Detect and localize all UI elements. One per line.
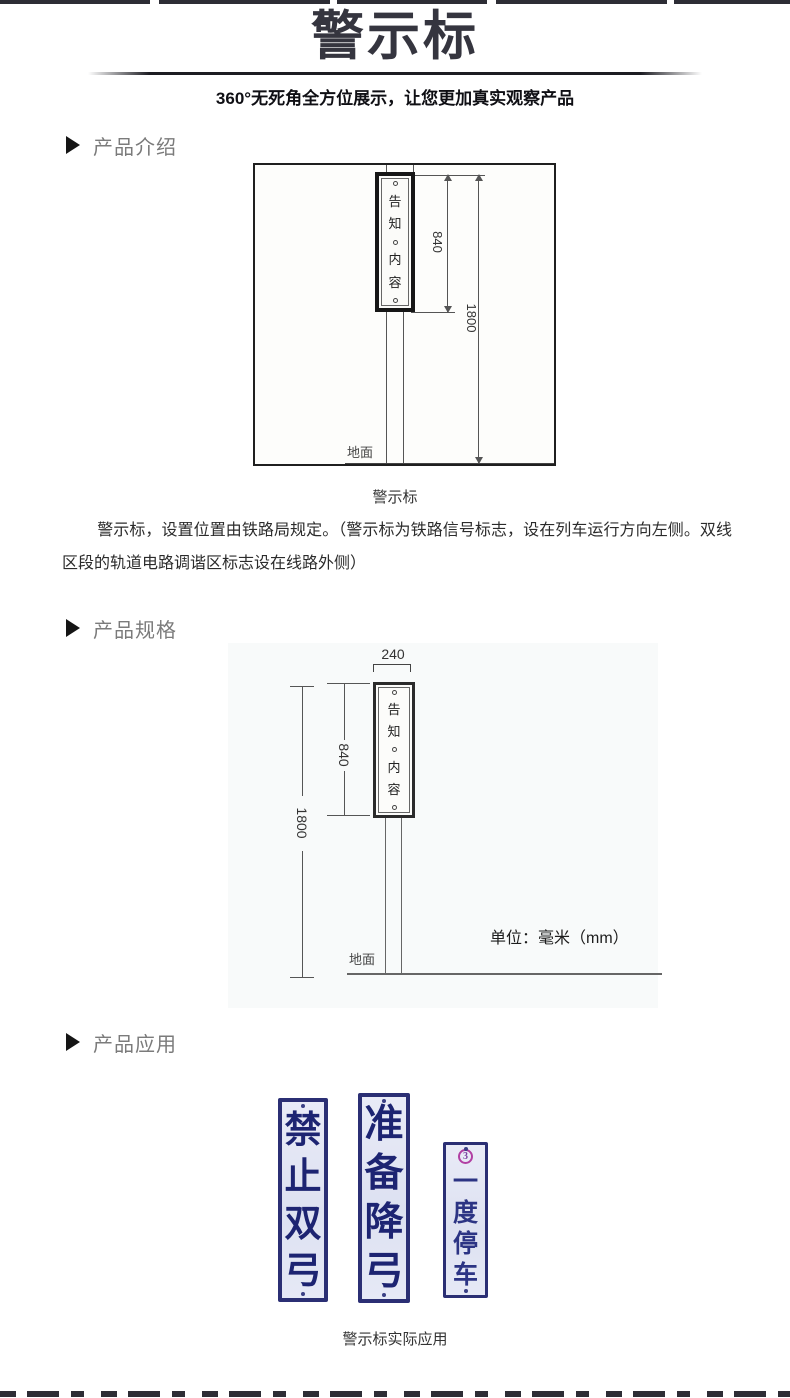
ground-line (347, 973, 662, 975)
spec-diagram: 240 告 知 内 容 840 1800 地面 单位：毫米（ (228, 643, 658, 1008)
app-sign-text: 准备降弓 (363, 1100, 404, 1296)
sign-plate-inner: 告 知 内 容 (381, 178, 409, 306)
sign-plate-inner: 告 知 内 容 (378, 687, 410, 813)
app-sign-jinzhi-shuanggong: 禁止双弓 (278, 1098, 328, 1302)
dimension-label-1800: 1800 (464, 295, 478, 341)
section-header-intro: 产品介绍 (66, 132, 177, 158)
bottom-border-strip (0, 1391, 790, 1397)
circled-number-icon: 3 (458, 1149, 473, 1164)
screw-hole-icon (393, 298, 398, 303)
dimension-bracket-240 (373, 664, 411, 672)
sign-char: 容 (388, 276, 401, 290)
section-label: 产品规格 (93, 614, 177, 643)
sign-plate-drawing: 告 知 内 容 (373, 682, 415, 818)
title-divider (88, 72, 702, 75)
screw-hole-icon (392, 805, 397, 810)
dimension-label-240: 240 (368, 646, 418, 662)
ground-label: 地面 (347, 442, 373, 461)
triangle-bullet-icon (66, 619, 80, 637)
sign-char: 知 (387, 725, 400, 739)
sign-char: 告 (387, 703, 400, 717)
section-header-spec: 产品规格 (66, 615, 177, 641)
dimension-label-1800: 1800 (295, 797, 309, 849)
intro-paragraph: 警示标，设置位置由铁路局规定。（警示标为铁路信号标志，设在列车运行方向左侧。双线… (62, 514, 732, 580)
sign-post (386, 312, 404, 463)
post-stub-line (386, 165, 387, 172)
sign-char: 内 (388, 253, 401, 267)
post-stub-line (413, 165, 414, 172)
dimension-line-840 (344, 683, 345, 740)
sign-post (385, 818, 402, 973)
page-title: 警示标 (0, 4, 790, 70)
dimension-line-840 (344, 771, 345, 815)
screw-hole-icon (392, 690, 397, 695)
unit-label: 单位：毫米（mm） (490, 924, 629, 948)
app-sign-text: 一度停车 (452, 1167, 479, 1291)
intro-diagram-caption: 警示标 (0, 486, 790, 507)
sign-char: 容 (387, 783, 400, 797)
dimension-label-840: 840 (337, 735, 351, 775)
dimension-cap (327, 683, 370, 684)
dimension-label-840: 840 (430, 222, 444, 262)
ground-label: 地面 (349, 949, 375, 968)
app-sign-text: 禁止双弓 (283, 1106, 322, 1294)
screw-hole-icon (393, 181, 398, 186)
page-subtitle: 360°无死角全方位展示，让您更加真实观察产品 (0, 84, 790, 109)
dimension-line-840 (447, 175, 448, 312)
dimension-cap (290, 977, 314, 978)
app-sign-zhunbei-jianggong: 准备降弓 (358, 1093, 410, 1303)
sign-char: 知 (388, 217, 401, 231)
intro-diagram: 告 知 内 容 840 1800 地面 (253, 163, 556, 466)
section-label: 产品应用 (93, 1028, 177, 1057)
dimension-line-1800 (302, 851, 303, 977)
ground-line (345, 463, 554, 464)
screw-hole-icon (393, 240, 398, 245)
sign-char: 告 (388, 195, 401, 209)
sign-char: 内 (387, 761, 400, 775)
product-page: 警示标 360°无死角全方位展示，让您更加真实观察产品 产品介绍 告 知 内 容… (0, 0, 790, 1398)
dimension-cap (327, 815, 370, 816)
triangle-bullet-icon (66, 136, 80, 154)
triangle-bullet-icon (66, 1033, 80, 1051)
section-header-app: 产品应用 (66, 1029, 177, 1055)
dimension-line-1800 (302, 686, 303, 796)
screw-hole-icon (392, 747, 397, 752)
app-sign-yidu-tingche: 3 一度停车 (443, 1142, 488, 1298)
section-label: 产品介绍 (93, 131, 177, 160)
sign-plate-drawing: 告 知 内 容 (375, 172, 415, 312)
application-caption: 警示标实际应用 (0, 1328, 790, 1349)
